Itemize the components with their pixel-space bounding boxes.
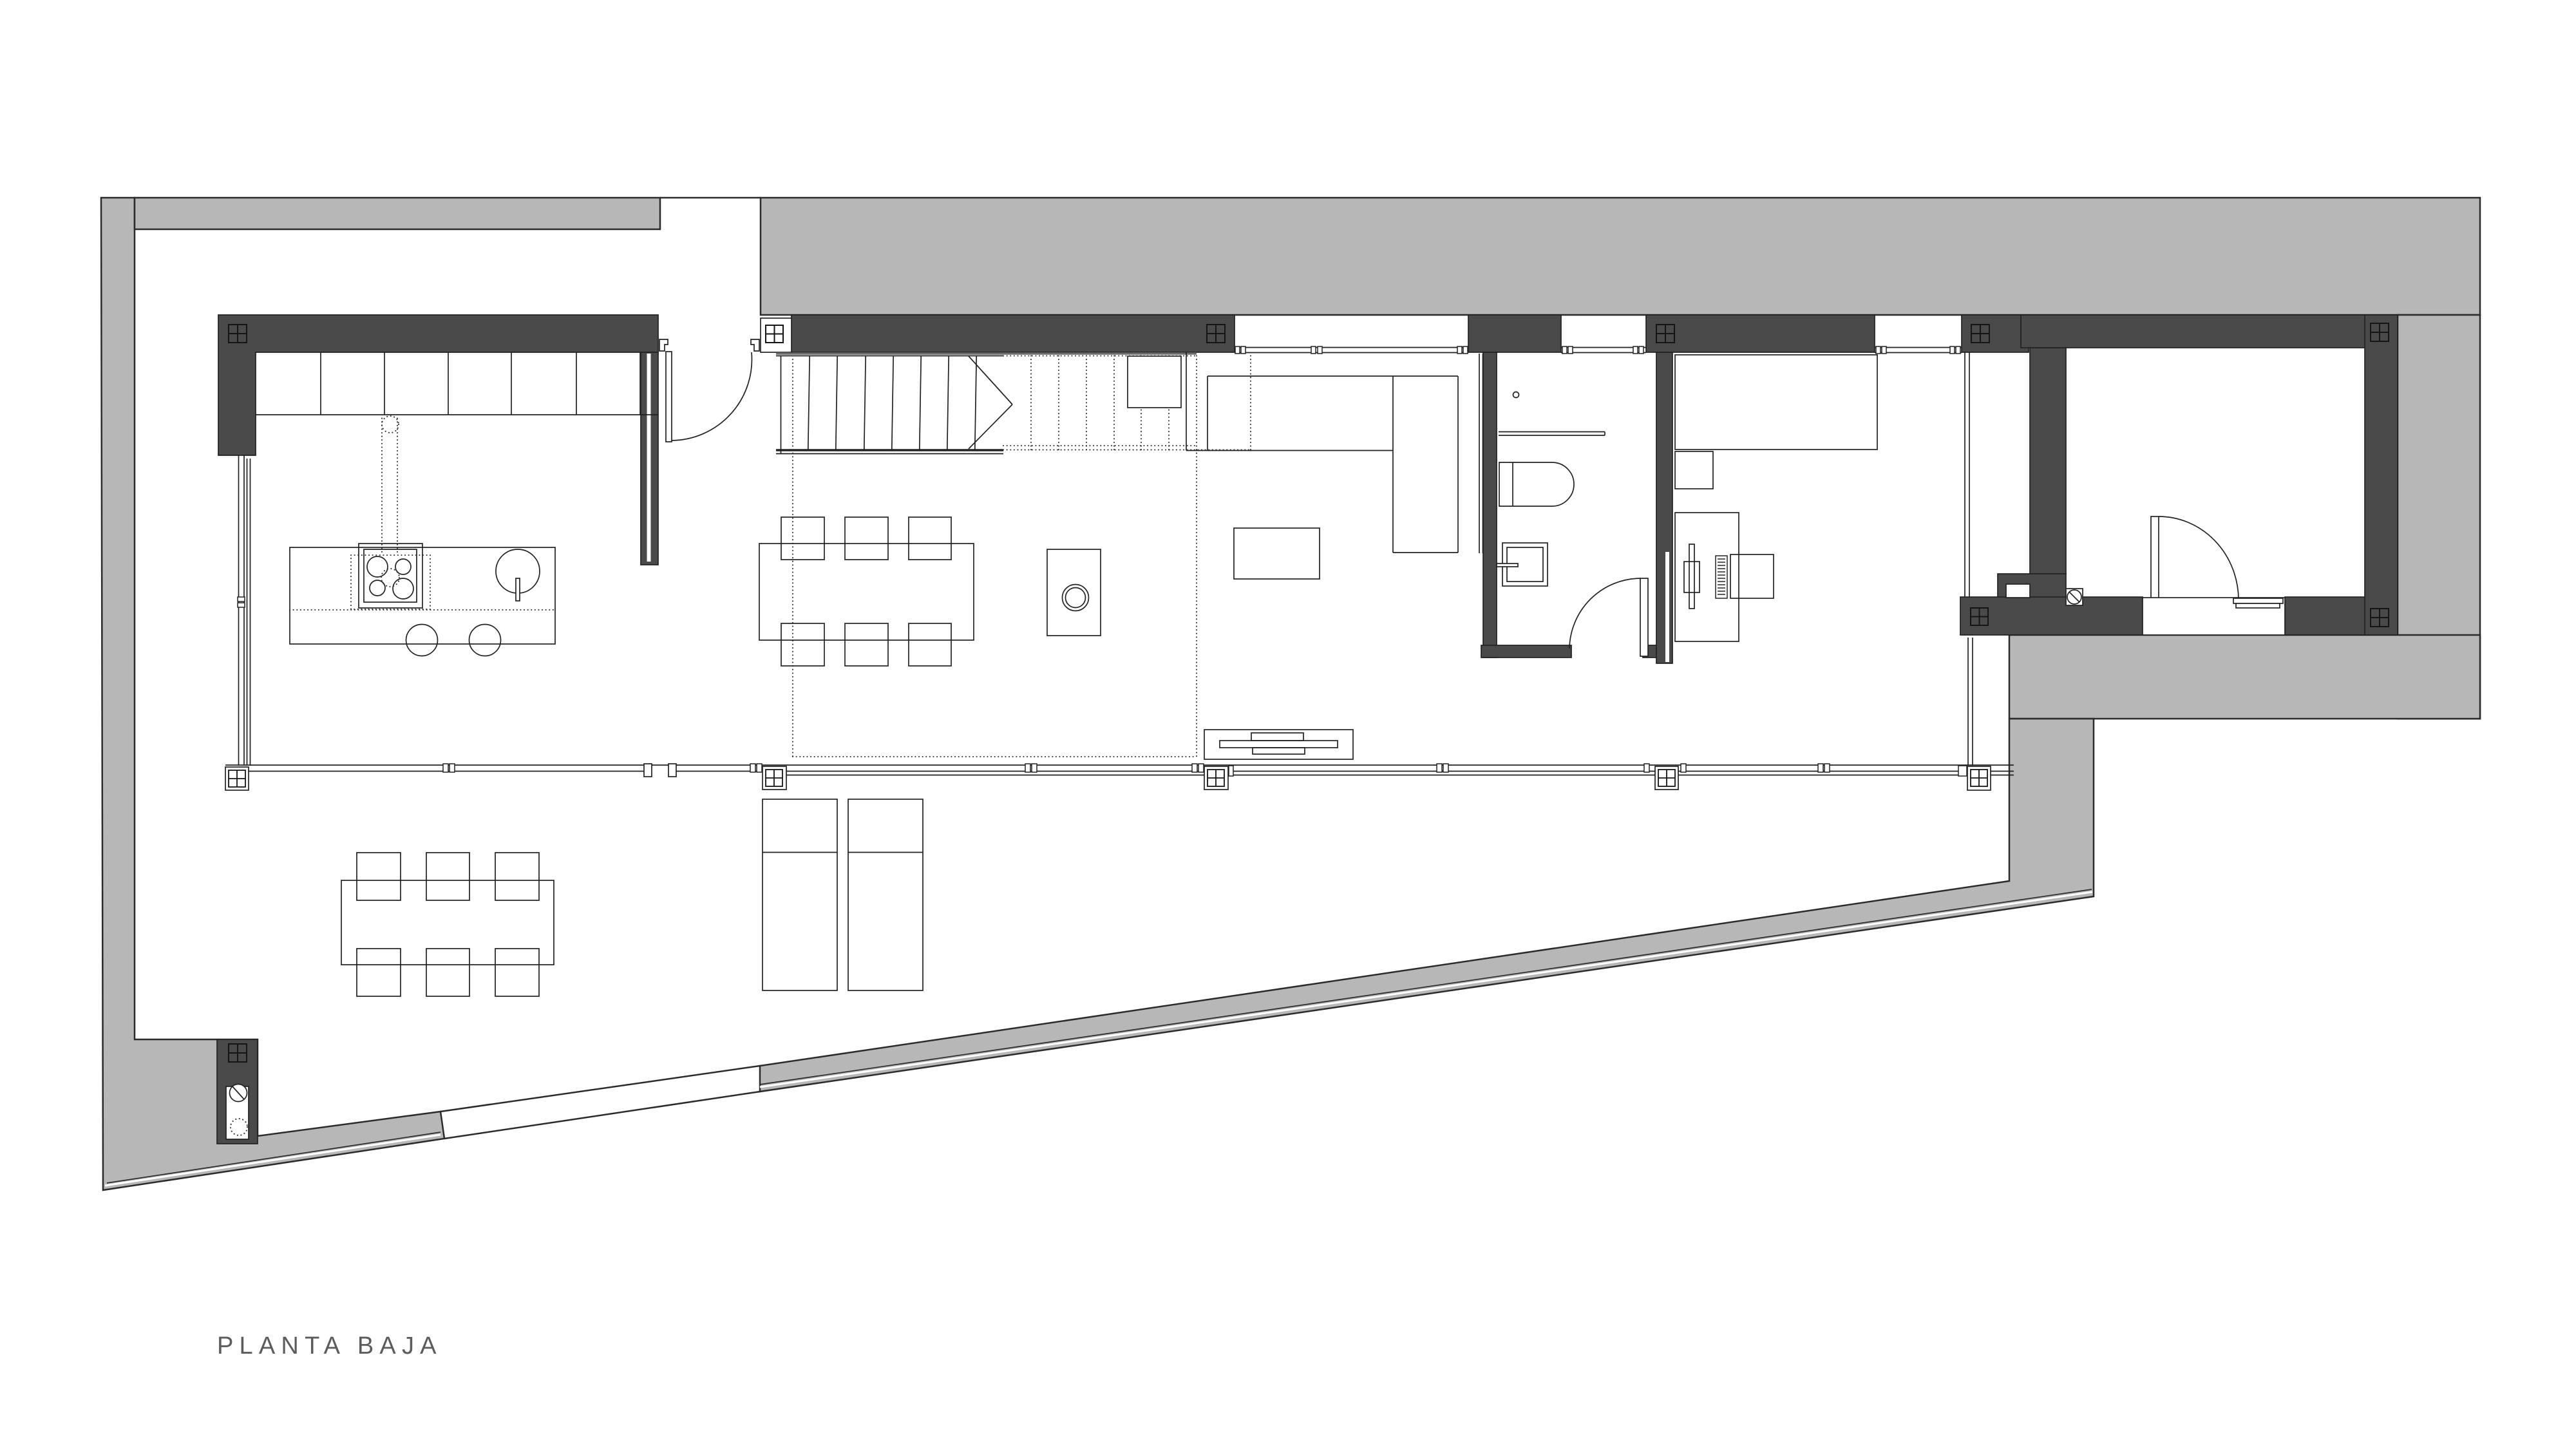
svg-text:PLANTA BAJA: PLANTA BAJA [217,1332,442,1359]
